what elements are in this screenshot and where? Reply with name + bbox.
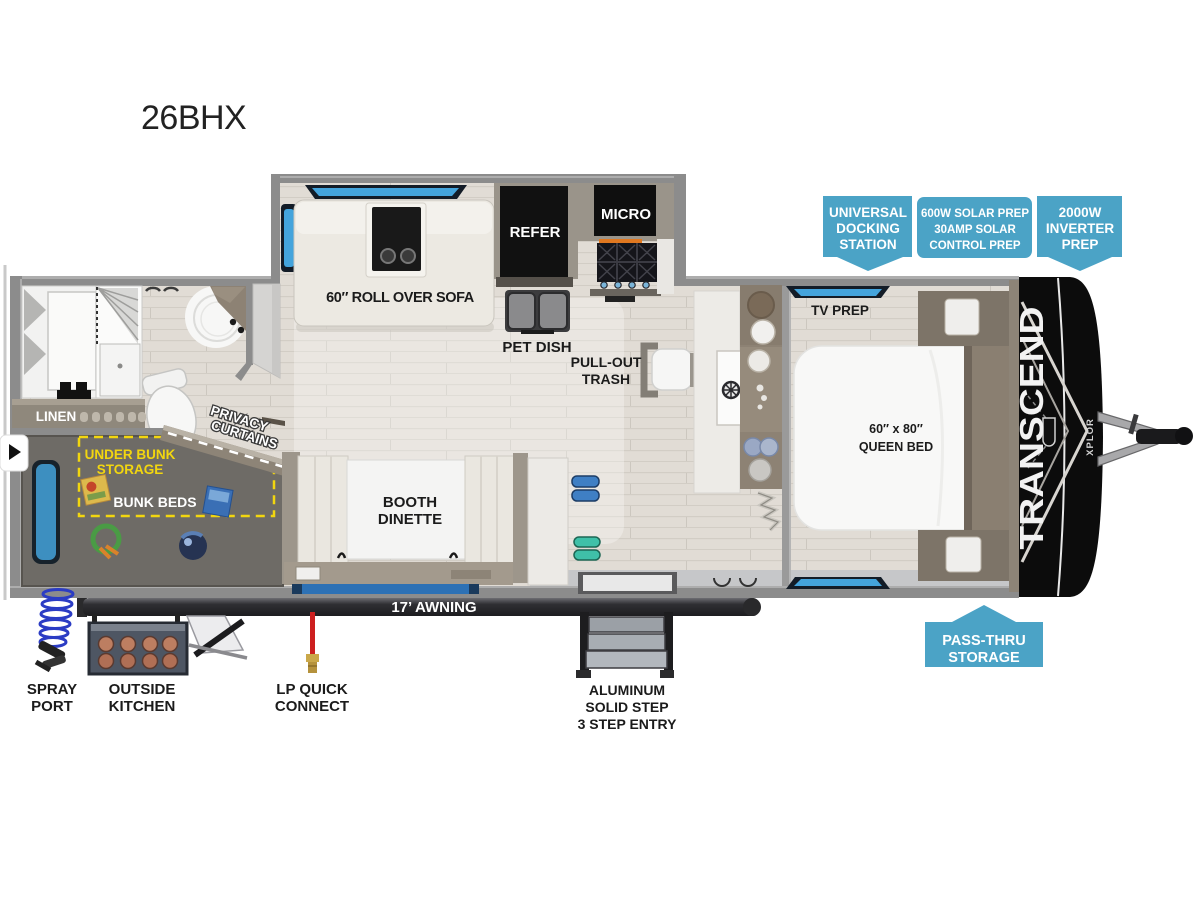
svg-text:DINETTE: DINETTE: [378, 511, 442, 528]
svg-text:STORAGE: STORAGE: [948, 650, 1020, 666]
svg-text:REFER: REFER: [510, 224, 561, 241]
svg-text:XPLOR: XPLOR: [1085, 418, 1096, 456]
svg-text:3 STEP ENTRY: 3 STEP ENTRY: [578, 716, 677, 732]
svg-text:OUTSIDE: OUTSIDE: [109, 681, 176, 698]
svg-text:STATION: STATION: [839, 237, 896, 252]
svg-text:PULL-OUT: PULL-OUT: [571, 354, 642, 370]
svg-text:CONNECT: CONNECT: [275, 698, 349, 715]
svg-text:TV PREP: TV PREP: [811, 303, 869, 318]
svg-text:TRASH: TRASH: [582, 371, 630, 387]
svg-text:TRANSCEND: TRANSCEND: [1013, 307, 1050, 550]
svg-text:60″ x 80″: 60″ x 80″: [869, 422, 923, 436]
svg-text:2000W: 2000W: [1059, 205, 1102, 220]
svg-text:PORT: PORT: [31, 698, 73, 715]
svg-text:PREP: PREP: [1062, 237, 1099, 252]
svg-text:BOOTH: BOOTH: [383, 494, 437, 511]
svg-text:DOCKING: DOCKING: [836, 221, 900, 236]
svg-text:600W SOLAR PREP: 600W SOLAR PREP: [921, 208, 1029, 220]
svg-text:MICRO: MICRO: [601, 206, 651, 223]
svg-text:PET DISH: PET DISH: [502, 339, 571, 356]
svg-text:CONTROL PREP: CONTROL PREP: [929, 240, 1020, 252]
svg-text:KITCHEN: KITCHEN: [109, 698, 176, 715]
svg-text:STORAGE: STORAGE: [97, 462, 164, 477]
svg-text:BUNK BEDS: BUNK BEDS: [113, 494, 196, 510]
svg-text:UNIVERSAL: UNIVERSAL: [829, 205, 907, 220]
svg-text:26BHX: 26BHX: [141, 99, 246, 137]
svg-text:INVERTER: INVERTER: [1046, 221, 1115, 236]
svg-text:SPRAY: SPRAY: [27, 681, 77, 698]
svg-text:PASS-THRU: PASS-THRU: [942, 633, 1026, 649]
svg-text:17’ AWNING: 17’ AWNING: [391, 599, 476, 616]
svg-text:LP QUICK: LP QUICK: [276, 681, 348, 698]
svg-text:QUEEN BED: QUEEN BED: [859, 440, 933, 454]
svg-text:60″ ROLL OVER SOFA: 60″ ROLL OVER SOFA: [326, 290, 475, 306]
svg-text:LINEN: LINEN: [36, 409, 77, 424]
svg-text:UNDER BUNK: UNDER BUNK: [85, 447, 176, 462]
svg-text:30AMP SOLAR: 30AMP SOLAR: [934, 224, 1016, 236]
svg-text:ALUMINUM: ALUMINUM: [589, 682, 665, 698]
svg-text:SOLID STEP: SOLID STEP: [585, 699, 668, 715]
